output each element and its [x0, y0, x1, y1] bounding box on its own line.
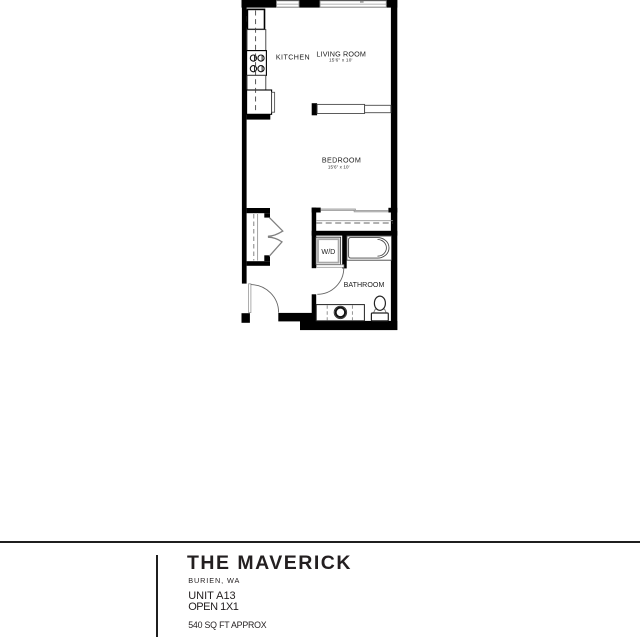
svg-text:BATHROOM: BATHROOM [344, 281, 385, 289]
svg-text:15'6" x 10': 15'6" x 10' [328, 164, 350, 169]
svg-text:15'6" x 10': 15'6" x 10' [329, 58, 353, 63]
svg-text:KITCHEN: KITCHEN [276, 53, 310, 61]
svg-text:W/D: W/D [321, 247, 335, 256]
